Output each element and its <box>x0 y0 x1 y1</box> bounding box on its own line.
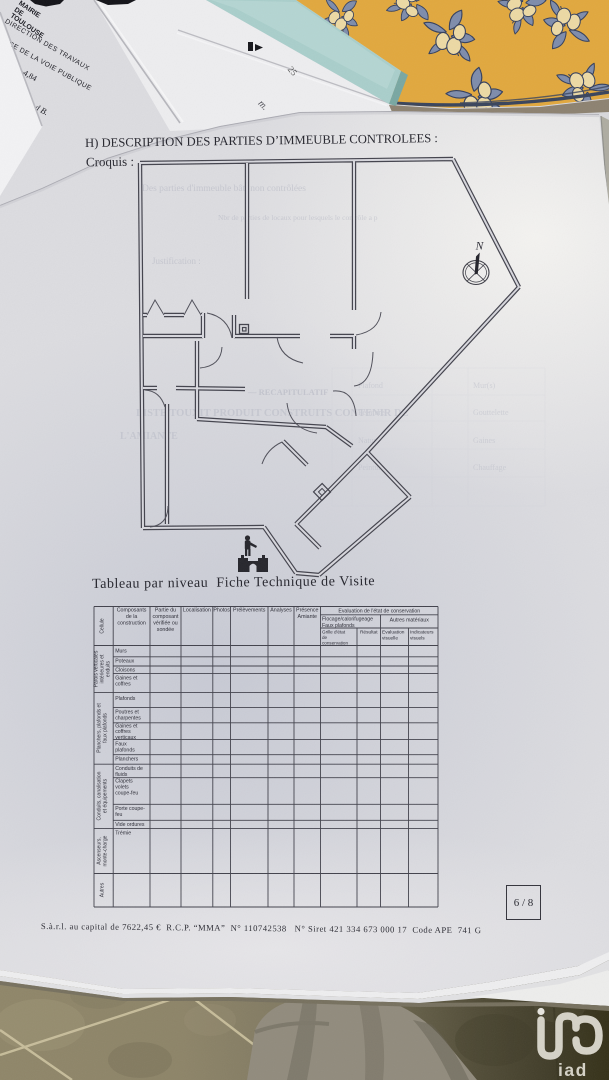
svg-text:Planchers: Planchers <box>115 757 138 763</box>
svg-text:de: de <box>322 635 328 640</box>
svg-text:Autres: Autres <box>100 882 106 897</box>
svg-text:verticaux: verticaux <box>115 735 136 741</box>
svg-text:Trémie: Trémie <box>115 831 131 837</box>
svg-text:Partie du: Partie du <box>155 608 176 614</box>
svg-text:Plafonds: Plafonds <box>115 696 136 702</box>
svg-text:Prélèvements: Prélèvements <box>233 608 266 614</box>
svg-text:Grille d'état: Grille d'état <box>322 630 346 635</box>
svg-text:Vide ordures: Vide ordures <box>115 822 145 828</box>
svg-text:Photos: Photos <box>213 608 230 614</box>
svg-text:feu: feu <box>115 812 122 818</box>
svg-text:Résultat: Résultat <box>360 630 378 636</box>
svg-text:Poteaux: Poteaux <box>115 659 134 665</box>
svg-text:Cellule: Cellule <box>100 618 106 634</box>
svg-text:Cloisons: Cloisons <box>115 668 135 674</box>
svg-text:et équipements: et équipements <box>103 778 109 813</box>
svg-text:Evaluation: Evaluation <box>382 630 405 636</box>
svg-text:Présence: Présence <box>296 608 318 614</box>
svg-text:de la: de la <box>126 614 138 620</box>
svg-text:enduits: enduits <box>106 660 112 677</box>
svg-text:charpentes: charpentes <box>115 715 141 721</box>
svg-text:Amiante: Amiante <box>298 614 317 620</box>
svg-text:conservation: conservation <box>322 640 348 645</box>
svg-text:Murs: Murs <box>115 649 127 655</box>
svg-text:coupe-feu: coupe-feu <box>115 790 138 796</box>
svg-text:Analyses: Analyses <box>270 608 292 614</box>
svg-text:construction: construction <box>117 621 146 627</box>
svg-text:Faux plafonds: Faux plafonds <box>322 623 355 629</box>
svg-text:Evaluation de l'état de conser: Evaluation de l'état de conservation <box>338 609 420 615</box>
svg-text:composant: composant <box>153 614 179 620</box>
svg-text:faux plafonds: faux plafonds <box>103 713 109 743</box>
svg-text:monte-charge: monte-charge <box>103 835 109 866</box>
svg-text:visuelle: visuelle <box>382 635 398 641</box>
svg-text:Composants: Composants <box>117 608 147 614</box>
svg-text:Indicateurs: Indicateurs <box>410 630 434 636</box>
svg-text:Flocage/calorifugeage: Flocage/calorifugeage <box>322 617 373 623</box>
svg-text:coffres: coffres <box>115 681 131 687</box>
svg-text:visuels: visuels <box>410 635 425 641</box>
svg-text:plafonds: plafonds <box>115 747 135 753</box>
svg-text:Localisation: Localisation <box>183 608 211 614</box>
svg-text:vérifiée ou: vérifiée ou <box>153 621 177 627</box>
svg-text:sondée: sondée <box>157 627 174 633</box>
svg-text:Autres matériaux: Autres matériaux <box>390 618 430 624</box>
svg-text:fluids: fluids <box>115 772 128 778</box>
